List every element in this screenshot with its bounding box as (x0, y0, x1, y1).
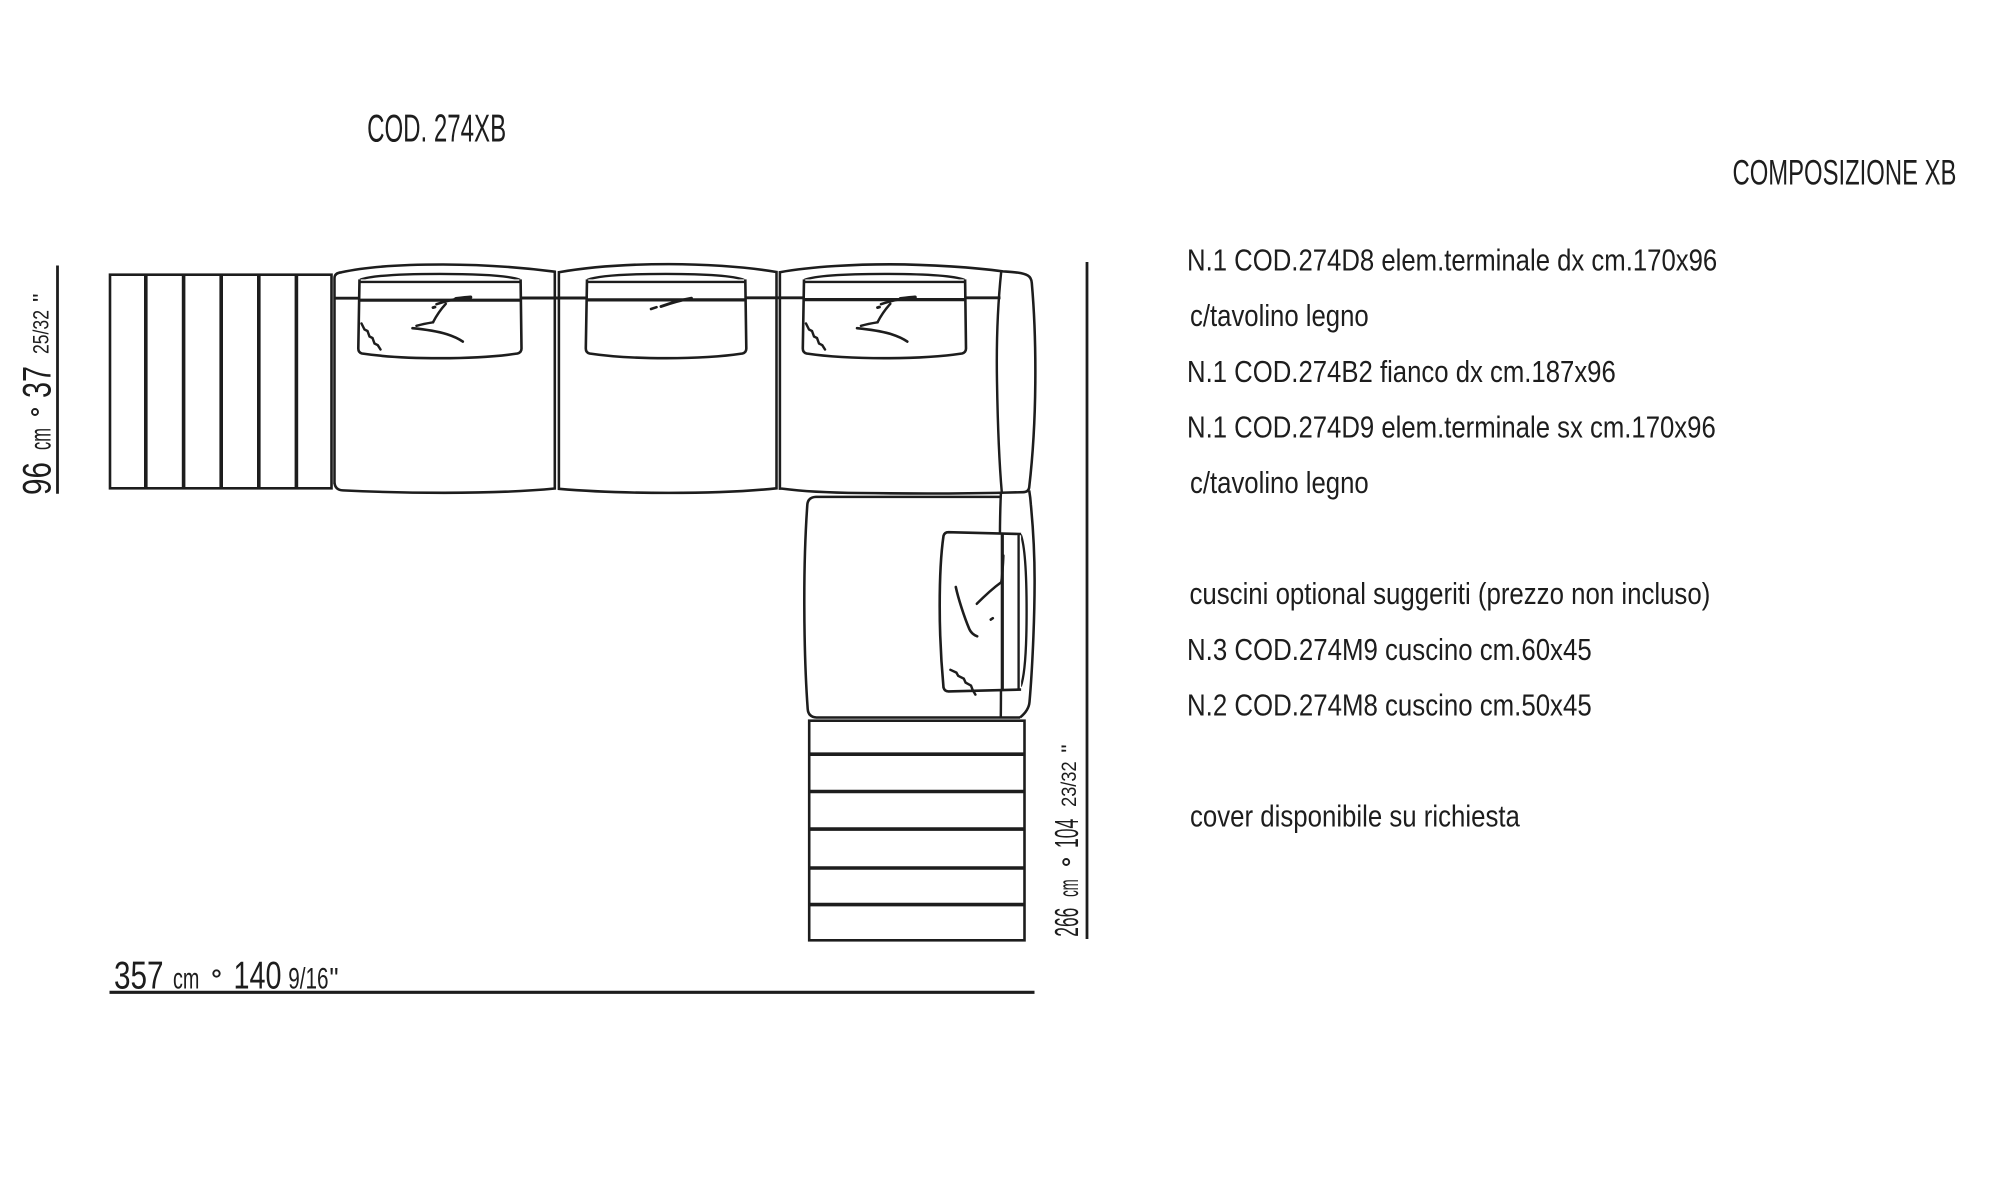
svg-text:cuscini optional suggeriti (pr: cuscini optional suggeriti (prezzo non i… (1190, 577, 1711, 612)
svg-text:104: 104 (1048, 819, 1085, 848)
svg-text:9/16: 9/16 (288, 963, 328, 995)
svg-text:COMPOSIZIONE XB: COMPOSIZIONE XB (1733, 154, 1957, 193)
svg-text:N.3 COD.274M9 cuscino cm.60x45: N.3 COD.274M9 cuscino cm.60x45 (1187, 633, 1592, 668)
svg-text:c/tavolino legno: c/tavolino legno (1190, 466, 1369, 501)
svg-text:N.1 COD.274D9 elem.terminale s: N.1 COD.274D9 elem.terminale sx cm.170x9… (1187, 410, 1716, 445)
svg-text:N.1 COD.274B2 fianco dx cm.187: N.1 COD.274B2 fianco dx cm.187x96 (1187, 355, 1616, 390)
svg-text:cm: cm (25, 428, 58, 450)
svg-text:cm: cm (1052, 879, 1084, 896)
svg-text:cover disponibile su richiesta: cover disponibile su richiesta (1190, 799, 1520, 834)
svg-text:37: 37 (15, 366, 60, 398)
svg-text:N.2 COD.274M8 cuscino cm.50x45: N.2 COD.274M8 cuscino cm.50x45 (1187, 688, 1592, 723)
svg-text:": " (329, 962, 338, 995)
svg-text:COD. 274XB: COD. 274XB (367, 107, 506, 150)
svg-text:140: 140 (234, 954, 282, 997)
svg-text:25/32: 25/32 (30, 310, 54, 354)
svg-text:266: 266 (1048, 908, 1086, 937)
svg-text:96: 96 (15, 462, 59, 495)
svg-text:": " (1057, 744, 1081, 752)
svg-text:N.1 COD.274D8 elem.terminale d: N.1 COD.274D8 elem.terminale dx cm.170x9… (1187, 243, 1717, 278)
svg-text:cm: cm (173, 963, 199, 996)
svg-text:": " (29, 293, 54, 302)
svg-text:357: 357 (114, 955, 164, 998)
svg-text:23/32: 23/32 (1058, 761, 1082, 806)
svg-text:c/tavolino legno: c/tavolino legno (1190, 299, 1369, 334)
